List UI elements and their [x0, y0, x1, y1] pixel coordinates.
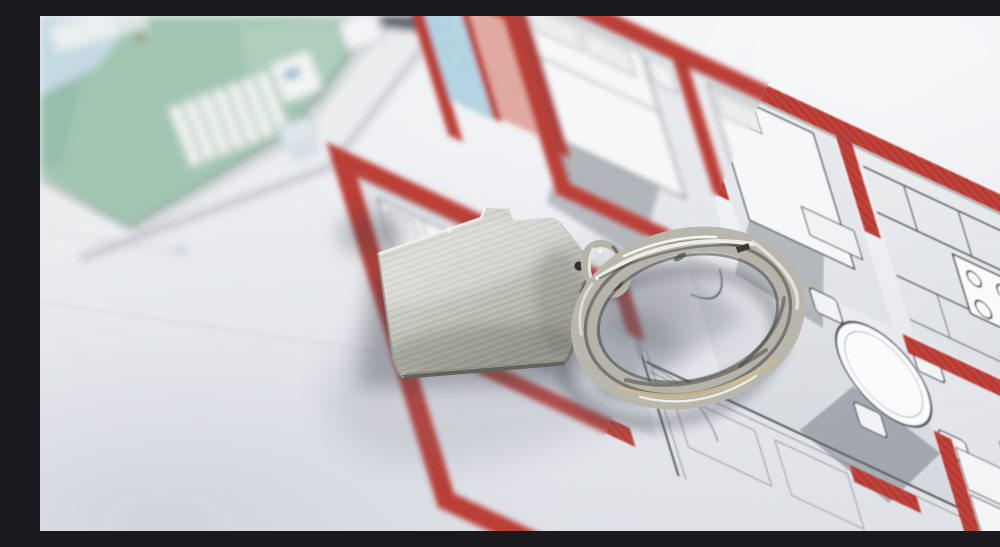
metal-nick [446, 227, 452, 233]
real-estate-keychain-photo: House-shaped metal keychain with key rin… [40, 16, 1000, 531]
photo-canvas: House-shaped metal keychain with key rin… [40, 16, 1000, 531]
